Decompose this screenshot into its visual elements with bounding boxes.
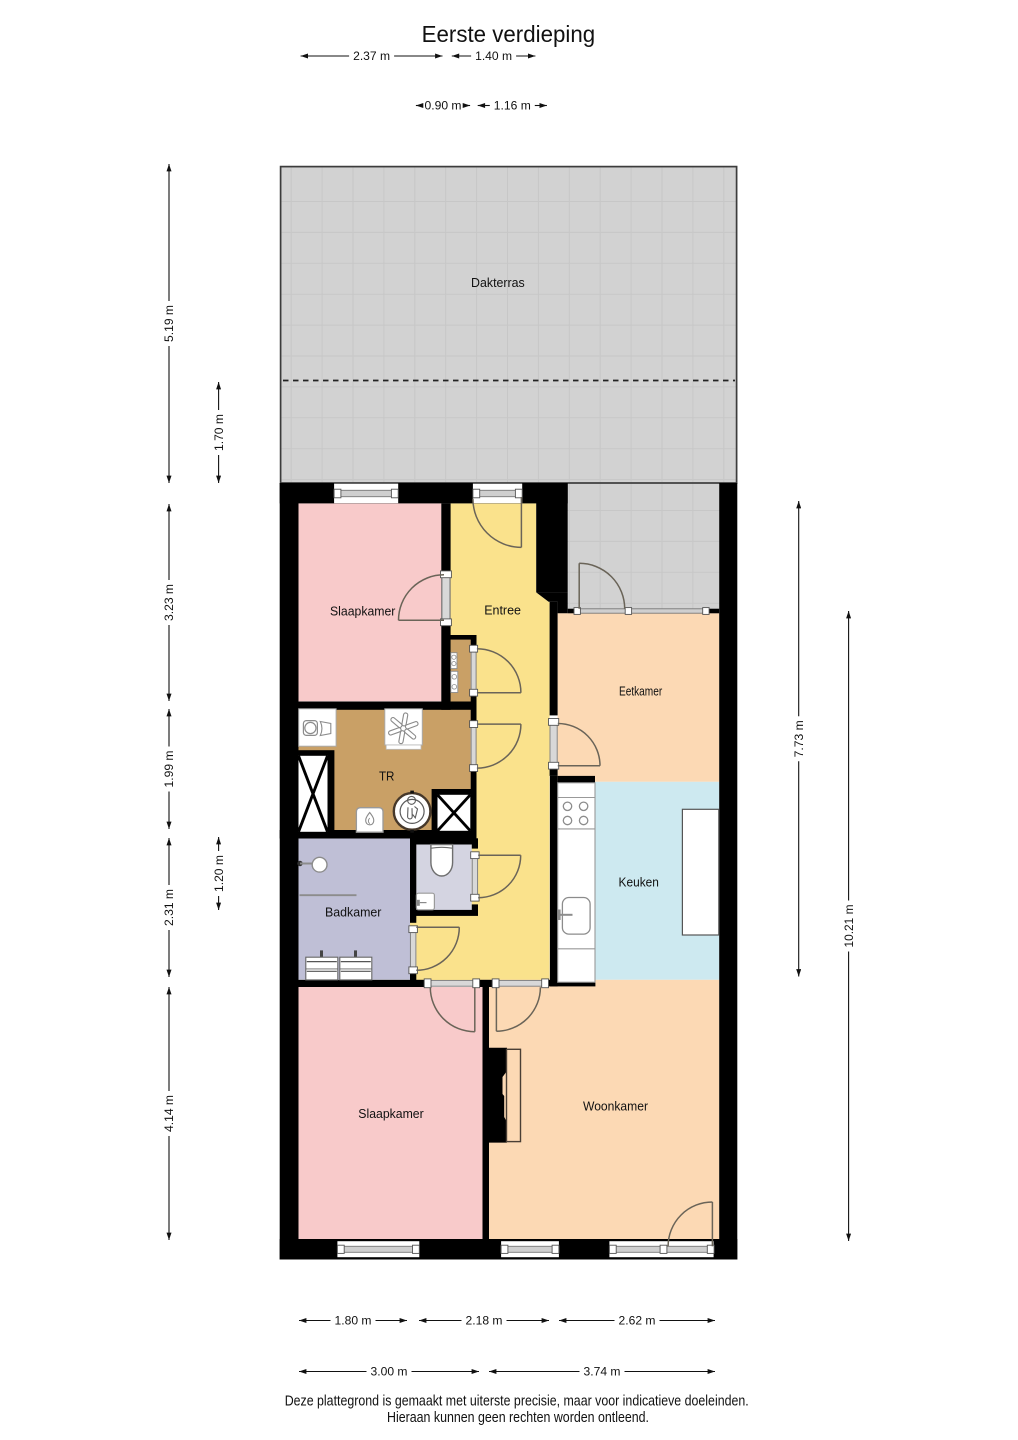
svg-text:3.74 m: 3.74 m bbox=[584, 1367, 621, 1379]
svg-text:1.70 m: 1.70 m bbox=[214, 414, 226, 451]
svg-text:Hieraan kunnen geen rechten wo: Hieraan kunnen geen rechten worden ontle… bbox=[387, 1410, 649, 1426]
svg-text:Dakterras: Dakterras bbox=[471, 276, 525, 290]
svg-text:10.21 m: 10.21 m bbox=[844, 905, 856, 948]
svg-text:1.16 m: 1.16 m bbox=[494, 101, 531, 113]
svg-text:2.62 m: 2.62 m bbox=[619, 1316, 656, 1328]
svg-text:Badkamer: Badkamer bbox=[325, 905, 382, 920]
svg-text:2.37 m: 2.37 m bbox=[353, 51, 390, 63]
svg-text:2.31 m: 2.31 m bbox=[164, 889, 176, 926]
svg-text:1.20 m: 1.20 m bbox=[214, 855, 226, 892]
svg-text:4.14 m: 4.14 m bbox=[164, 1095, 176, 1132]
svg-text:1.99 m: 1.99 m bbox=[164, 751, 176, 788]
svg-text:Entree: Entree bbox=[484, 603, 521, 618]
svg-text:Keuken: Keuken bbox=[619, 875, 659, 890]
svg-text:Eerste verdieping: Eerste verdieping bbox=[422, 21, 596, 47]
svg-text:Slaapkamer: Slaapkamer bbox=[330, 604, 396, 619]
svg-text:3.00 m: 3.00 m bbox=[371, 1367, 408, 1379]
svg-text:0.90 m: 0.90 m bbox=[425, 101, 462, 113]
svg-text:Eetkamer: Eetkamer bbox=[619, 684, 663, 699]
svg-text:5.19 m: 5.19 m bbox=[164, 305, 176, 342]
svg-text:3.23 m: 3.23 m bbox=[164, 584, 176, 621]
svg-text:2.18 m: 2.18 m bbox=[466, 1316, 503, 1328]
svg-text:Slaapkamer: Slaapkamer bbox=[358, 1106, 424, 1121]
svg-text:1.40 m: 1.40 m bbox=[475, 51, 512, 63]
svg-text:Woonkamer: Woonkamer bbox=[583, 1099, 649, 1114]
svg-text:1.80 m: 1.80 m bbox=[335, 1316, 372, 1328]
svg-text:7.73 m: 7.73 m bbox=[794, 720, 806, 757]
svg-text:TR: TR bbox=[379, 769, 395, 784]
svg-text:Deze plattegrond is gemaakt me: Deze plattegrond is gemaakt met uiterste… bbox=[285, 1394, 749, 1410]
